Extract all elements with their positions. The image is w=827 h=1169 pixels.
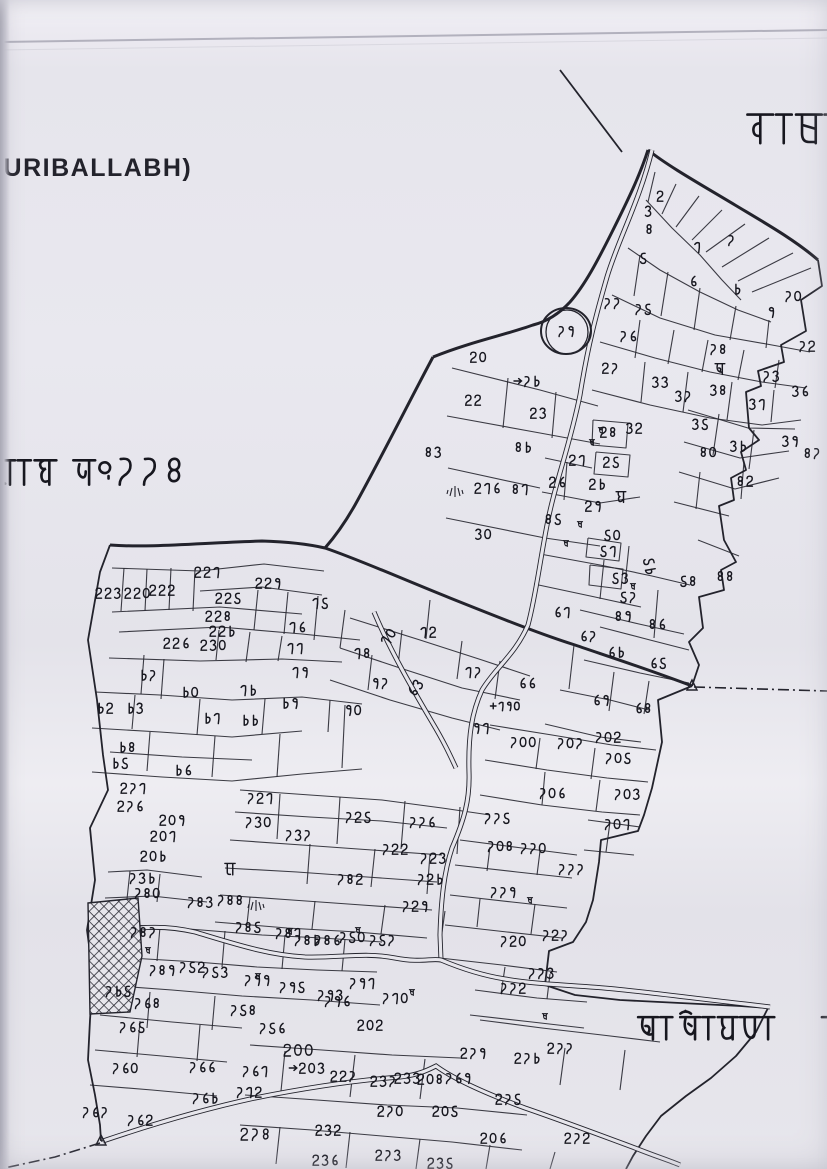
- bengali-glyph: [254, 715, 258, 725]
- bengali-glyph: [809, 341, 814, 351]
- bengali-glyph: [660, 658, 665, 668]
- bengali-glyph: [169, 459, 179, 481]
- parcel-line: [569, 645, 574, 689]
- plot-label: [514, 376, 539, 386]
- bengali-glyph: [738, 477, 742, 486]
- bengali-glyph: [626, 612, 630, 622]
- pond-inner: [546, 310, 588, 354]
- bengali-glyph: [614, 299, 618, 309]
- parcel-line: [485, 760, 648, 782]
- parcel-line: [550, 1152, 555, 1169]
- bengali-glyph: [440, 853, 445, 863]
- parcel-line: [426, 600, 430, 639]
- plot-label: [384, 844, 408, 854]
- bengali-glyph: [333, 1155, 337, 1164]
- parcel-line: [531, 904, 535, 934]
- parcel-line: [713, 414, 719, 455]
- bengali-glyph: [786, 292, 790, 302]
- bengali-glyph: [621, 332, 625, 342]
- bengali-glyph: [121, 742, 125, 752]
- bengali-glyph: [250, 1006, 254, 1015]
- bengali-glyph: [548, 968, 553, 978]
- plot-label: [313, 598, 327, 608]
- plot-label: [189, 897, 212, 907]
- bengali-glyph: [567, 1044, 571, 1054]
- bengali-glyph: [339, 875, 343, 885]
- bengali-glyph: [287, 831, 291, 841]
- bengali-glyph: [548, 1043, 553, 1053]
- plot-label: [284, 1044, 312, 1056]
- bengali-glyph: [636, 423, 641, 433]
- bengali-glyph: [73, 460, 95, 484]
- plot-label: [582, 631, 594, 641]
- plot-label: [793, 386, 808, 396]
- bengali-glyph: [121, 783, 126, 793]
- plot-label: [249, 793, 272, 803]
- bengali-glyph: [131, 1022, 135, 1031]
- plot-label: [287, 830, 310, 840]
- bengali-glyph: [365, 812, 370, 822]
- parcel-line: [727, 382, 732, 420]
- bengali-glyph: [265, 578, 270, 588]
- plot-label: [621, 592, 635, 602]
- plot-label: [121, 742, 133, 752]
- bengali-glyph: [384, 845, 388, 855]
- bengali-glyph: [731, 441, 736, 451]
- parcel-line: [534, 584, 641, 607]
- plot-label: [114, 1063, 138, 1073]
- bengali-glyph: [367, 1021, 373, 1030]
- bengali-glyph: [604, 457, 609, 467]
- bengali-glyph: [160, 966, 164, 975]
- village-name-se: [638, 1011, 827, 1039]
- parcel-line: [540, 554, 690, 585]
- bengali-glyph: [225, 863, 235, 874]
- plot-label: [502, 983, 526, 993]
- bengali-glyph: [507, 842, 511, 851]
- bengali-glyph: [290, 623, 295, 633]
- bengali-glyph: [535, 1053, 539, 1063]
- bengali-glyph: [225, 612, 229, 621]
- bengali-glyph: [105, 588, 110, 598]
- bengali-glyph: [241, 1128, 247, 1140]
- bengali-glyph: [393, 994, 398, 1004]
- bengali-glyph: [476, 529, 481, 539]
- parcel-line: [307, 844, 310, 884]
- bengali-glyph: [144, 459, 155, 485]
- bengali-glyph: [374, 679, 378, 689]
- bengali-glyph: [249, 794, 253, 804]
- bengali-glyph: [396, 1107, 402, 1116]
- bengali-glyph: [645, 304, 650, 314]
- bengali-glyph: [180, 816, 184, 826]
- plot-label: [284, 698, 297, 708]
- bengali-glyph: [331, 1071, 336, 1081]
- parcel-line: [503, 378, 508, 428]
- parcel-boundary-layer: [90, 172, 811, 1169]
- bengali-glyph: [481, 1049, 485, 1059]
- parcel-line: [552, 392, 556, 438]
- parcel-line: [698, 540, 739, 556]
- bengali-glyph: [603, 363, 608, 373]
- bengali-glyph: [511, 984, 515, 994]
- plot-label: [466, 668, 479, 678]
- bengali-glyph: [256, 976, 260, 986]
- bengali-glyph: [653, 377, 658, 387]
- bengali-glyph: [264, 1129, 268, 1139]
- bengali-glyph: [204, 567, 209, 577]
- bengali-glyph: [160, 815, 165, 825]
- parcel-line: [337, 797, 340, 844]
- parcel-line: [342, 705, 345, 768]
- plot-label: [515, 1053, 539, 1063]
- bengali-glyph: [604, 696, 608, 706]
- bengali-glyph: [435, 447, 440, 457]
- plot-label: [486, 813, 509, 823]
- bengali-glyph: [475, 724, 479, 734]
- bengali-glyph: [584, 1133, 589, 1143]
- bengali-glyph: [189, 898, 193, 908]
- bengali-glyph: [437, 1158, 442, 1168]
- bengali-glyph: [508, 702, 511, 710]
- parcel-line: [457, 641, 462, 679]
- bengali-glyph: [303, 668, 307, 678]
- plot-label: [121, 1022, 144, 1032]
- bengali-glyph: [662, 377, 667, 387]
- bengali-glyph: [759, 400, 764, 410]
- bengali-glyph: [35, 460, 57, 484]
- bengali-glyph: [137, 703, 142, 713]
- plot-label: [225, 863, 235, 874]
- parcel-line: [197, 1025, 200, 1061]
- bengali-glyph: [252, 685, 256, 695]
- bengali-glyph: [150, 671, 154, 681]
- parcel-line: [130, 958, 377, 972]
- bengali-glyph: [215, 611, 220, 621]
- bengali-glyph: [99, 703, 103, 713]
- bengali-glyph: [531, 408, 536, 418]
- parcel-line: [684, 442, 789, 458]
- parcel-line: [589, 565, 623, 589]
- bengali-glyph: [631, 331, 635, 340]
- parcel-line: [620, 1050, 625, 1090]
- bengali-glyph: [610, 647, 614, 656]
- plot-label: [241, 1128, 268, 1140]
- bengali-glyph: [793, 386, 798, 396]
- parcel-line: [668, 330, 674, 364]
- plot-label: [718, 572, 731, 581]
- bengali-glyph: [579, 456, 584, 466]
- bengali-glyph: [261, 1024, 265, 1034]
- bengali-glyph: [164, 638, 169, 648]
- village-name-ne: [747, 115, 827, 144]
- bengali-glyph: [614, 531, 620, 540]
- bengali-glyph: [277, 929, 281, 939]
- plot-label: [652, 658, 665, 668]
- plot-label: [195, 567, 218, 577]
- parcel-line: [127, 871, 130, 899]
- bengali-glyph: [190, 962, 195, 972]
- parcel-line: [662, 184, 676, 214]
- bengali-glyph: [622, 573, 627, 583]
- bengali-glyph: [776, 115, 792, 144]
- bengali-glyph: [225, 593, 230, 603]
- plot-label: [559, 739, 582, 749]
- bengali-glyph: [652, 658, 656, 667]
- bengali-glyph: [195, 567, 200, 577]
- bengali-glyph: [136, 999, 140, 1009]
- bengali-glyph: [516, 443, 520, 452]
- bengali-glyph: [630, 593, 634, 603]
- bengali-glyph: [280, 1023, 284, 1032]
- plot-label: [121, 783, 144, 793]
- parcel-line: [648, 172, 655, 202]
- parcel-line: [612, 295, 810, 352]
- bengali-glyph: [184, 638, 188, 647]
- dash-dot-boundary: [694, 687, 827, 691]
- bengali-glyph: [530, 969, 534, 979]
- bengali-glyph: [238, 1088, 242, 1098]
- bengali-glyph: [228, 896, 232, 905]
- bengali-glyph: [422, 854, 426, 864]
- bengali-glyph: [114, 1064, 118, 1074]
- bengali-glyph: [365, 649, 369, 658]
- bengali-glyph: [129, 1116, 133, 1126]
- bengali-glyph: [711, 345, 715, 355]
- parcel-line: [346, 1132, 350, 1168]
- bengali-glyph: [254, 1066, 258, 1075]
- bengali-glyph: [510, 936, 515, 946]
- bengali-glyph: [376, 1150, 381, 1160]
- bengali-glyph: [120, 459, 131, 485]
- plot-label: [770, 308, 774, 318]
- parcel-line: [145, 569, 147, 611]
- bengali-glyph: [471, 352, 476, 362]
- bengali-glyph: [128, 802, 132, 812]
- bengali-glyph: [214, 714, 219, 724]
- bengali-glyph: [601, 546, 606, 556]
- bengali-glyph: [685, 392, 689, 402]
- bengali-glyph: [262, 1067, 267, 1077]
- bengali-glyph: [495, 483, 499, 492]
- parcel-line: [480, 1020, 660, 1042]
- bengali-glyph: [161, 851, 165, 861]
- bengali-glyph: [335, 1125, 340, 1135]
- bengali-glyph: [590, 479, 595, 489]
- plot-label: [206, 713, 219, 723]
- plot-label: [556, 607, 569, 617]
- bengali-glyph: [437, 1075, 441, 1084]
- bengali-glyph: [793, 437, 797, 447]
- parcel-line: [738, 253, 793, 281]
- bengali-glyph: [377, 1020, 382, 1030]
- bengali-glyph: [582, 631, 586, 640]
- bengali-glyph: [201, 1062, 205, 1071]
- parcel-line: [580, 610, 684, 634]
- plot-label: [597, 732, 621, 742]
- bengali-glyph: [634, 789, 639, 799]
- plot-label: [481, 1133, 505, 1143]
- bengali-glyph: [502, 937, 506, 947]
- bengali-glyph: [284, 698, 288, 708]
- bengali-glyph: [270, 1023, 275, 1033]
- plot-label: [316, 1125, 340, 1135]
- plot-label: [641, 253, 646, 263]
- bengali-glyph: [300, 1063, 305, 1073]
- bengali-glyph: [169, 816, 175, 825]
- road-line: [103, 1066, 680, 1165]
- bengali-glyph: [355, 706, 361, 715]
- parcel-line: [92, 769, 362, 781]
- mouza-boundary-heavy: [648, 150, 818, 260]
- plot-label: [96, 588, 120, 598]
- bengali-glyph: [295, 830, 300, 840]
- plot-label: [475, 483, 499, 493]
- parcel-line: [247, 897, 250, 924]
- bengali-glyph: [309, 1064, 315, 1073]
- bengali-glyph: [210, 640, 215, 650]
- plot-label: [490, 702, 519, 710]
- bengali-glyph: [691, 577, 695, 586]
- parcel-line: [381, 905, 385, 934]
- plot-label: [371, 935, 394, 945]
- plot-label: [544, 930, 567, 940]
- bengali-glyph: [531, 844, 535, 854]
- parcel-line: [738, 350, 744, 380]
- bengali-glyph: [241, 1005, 246, 1015]
- bengali-glyph: [527, 442, 531, 452]
- bengali-glyph: [501, 1133, 505, 1142]
- plot-label: [261, 1023, 285, 1033]
- plot-label: [604, 457, 619, 467]
- bengali-glyph: [0, 460, 15, 484]
- parcel-line: [225, 868, 437, 882]
- plot-label: [595, 695, 608, 705]
- bengali-glyph: [237, 896, 241, 905]
- bengali-glyph: [252, 1129, 257, 1140]
- bengali-glyph: [740, 1017, 760, 1038]
- bengali-glyph: [521, 678, 525, 687]
- bengali-glyph: [814, 449, 818, 459]
- bengali-glyph: [382, 679, 386, 689]
- parcel-line: [564, 462, 567, 500]
- bengali-glyph: [300, 622, 304, 631]
- parcel-line: [276, 1127, 280, 1164]
- bengali-glyph: [630, 584, 635, 590]
- bengali-glyph: [389, 936, 393, 946]
- bengali-glyph: [125, 588, 130, 598]
- plot-label: [502, 936, 526, 946]
- plot-label: [621, 331, 635, 341]
- parcel-line: [277, 794, 280, 839]
- bengali-glyph: [613, 457, 618, 467]
- parcel-line: [771, 390, 774, 422]
- plot-label: [421, 627, 435, 637]
- bengali-glyph: [264, 818, 270, 827]
- bengali-glyph: [485, 530, 491, 539]
- bengali-glyph: [244, 1067, 248, 1077]
- bengali-glyph: [471, 1049, 475, 1059]
- bengali-glyph: [404, 902, 408, 912]
- plot-label: [160, 815, 183, 825]
- bengali-glyph: [747, 115, 773, 144]
- bengali-glyph: [615, 732, 620, 742]
- bengali-glyph: [645, 569, 655, 574]
- bengali-glyph: [490, 1134, 496, 1143]
- bengali-glyph: [556, 607, 560, 616]
- bengali-glyph: [159, 585, 164, 595]
- parcel-line: [119, 627, 360, 640]
- parcel-line: [278, 636, 282, 661]
- parcel-line: [679, 472, 779, 489]
- plot-label: [313, 1155, 337, 1165]
- plot-label: [347, 706, 361, 716]
- plot-label: [531, 408, 546, 418]
- parcel-line: [371, 849, 375, 887]
- bengali-glyph: [485, 484, 490, 494]
- plot-label: [341, 932, 365, 942]
- bengali-glyph: [186, 765, 190, 774]
- parcel-line: [157, 927, 160, 961]
- bengali-glyph: [647, 225, 651, 234]
- parcel-line: [350, 618, 530, 676]
- bengali-glyph: [520, 983, 525, 993]
- bengali-glyph: [577, 522, 582, 528]
- bengali-glyph: [611, 428, 615, 437]
- parcel-line: [475, 990, 587, 1002]
- bengali-glyph: [247, 1088, 252, 1098]
- parcel-line: [90, 1085, 217, 1096]
- plot-label: [114, 758, 127, 768]
- plot-label: [603, 363, 617, 373]
- bengali-glyph: [145, 948, 150, 954]
- plot-label: [232, 1005, 255, 1015]
- bengali-glyph: [206, 713, 210, 723]
- plot-label: [177, 765, 190, 775]
- bengali-glyph: [18, 460, 31, 484]
- plot-label: [692, 276, 696, 285]
- bengali-glyph: [288, 644, 293, 654]
- bengali-glyph: [595, 695, 599, 704]
- bengali-glyph: [241, 686, 246, 696]
- bengali-glyph: [542, 1014, 547, 1020]
- bengali-glyph: [783, 436, 788, 446]
- bengali-glyph: [433, 1106, 438, 1116]
- bengali-glyph: [341, 933, 345, 943]
- plot-label: [290, 622, 304, 632]
- parcel-line: [212, 736, 215, 777]
- parcel-line: [594, 452, 630, 477]
- bengali-glyph: [466, 668, 471, 678]
- plot-label: [522, 844, 546, 854]
- bengali-glyph: [612, 364, 616, 374]
- bengali-glyph: [681, 576, 686, 586]
- bengali-glyph: [430, 817, 434, 826]
- bengali-glyph: [293, 668, 298, 678]
- bengali-glyph: [750, 399, 755, 409]
- bengali-glyph: [616, 790, 620, 800]
- bengali-glyph: [495, 814, 499, 824]
- bengali-glyph: [412, 901, 417, 911]
- bengali-glyph: [131, 1064, 137, 1073]
- bengali-glyph: [130, 743, 134, 752]
- plot-label: [136, 998, 159, 1008]
- bengali-glyph: [577, 739, 581, 749]
- bengali-glyph: [525, 377, 529, 387]
- plot-label: [411, 817, 435, 827]
- plot-label: [241, 685, 255, 695]
- bengali-glyph: [173, 638, 178, 648]
